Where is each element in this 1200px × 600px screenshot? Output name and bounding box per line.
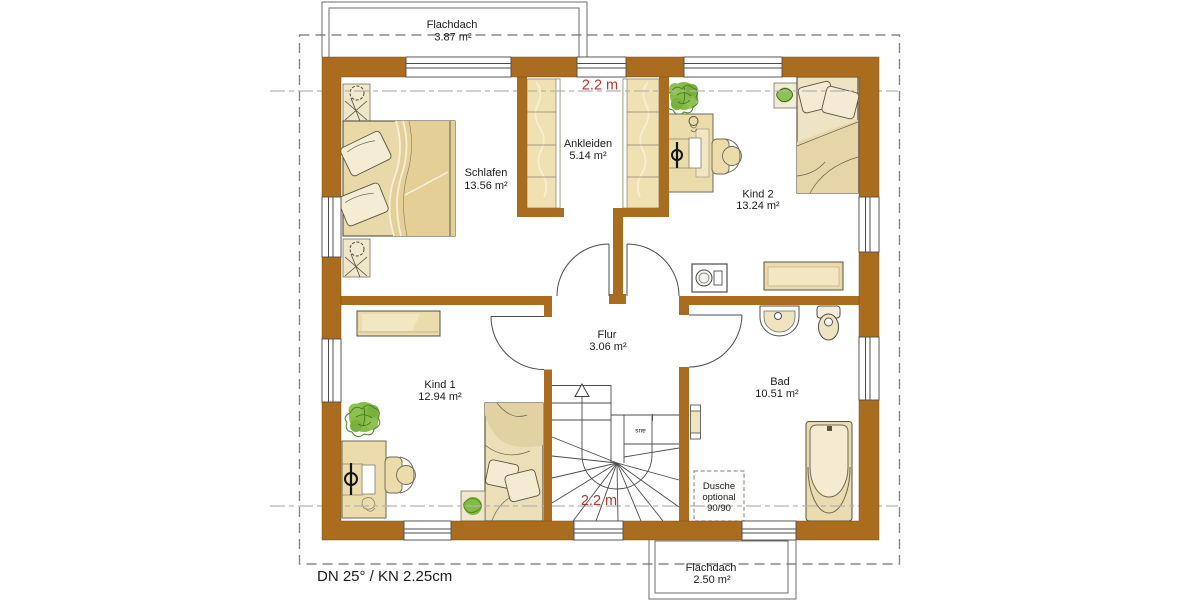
svg-text:2.50 m²: 2.50 m²	[693, 574, 731, 586]
svg-text:DN 25° / KN 2.25cm: DN 25° / KN 2.25cm	[317, 568, 452, 585]
svg-text:Flur: Flur	[598, 329, 617, 341]
svg-text:3.87 m²: 3.87 m²	[434, 32, 472, 44]
svg-text:5.14 m²: 5.14 m²	[569, 150, 607, 162]
svg-text:Flachdach: Flachdach	[686, 562, 737, 574]
svg-text:Flachdach: Flachdach	[427, 19, 478, 31]
svg-text:10.51 m²: 10.51 m²	[755, 388, 799, 400]
svg-text:2.2 m: 2.2 m	[581, 493, 617, 509]
svg-text:Ankleiden: Ankleiden	[564, 138, 612, 150]
svg-text:3.06 m²: 3.06 m²	[589, 341, 627, 353]
svg-text:2.2 m: 2.2 m	[582, 78, 618, 94]
svg-text:13.56 m²: 13.56 m²	[464, 180, 508, 192]
svg-text:Kind 1: Kind 1	[424, 379, 455, 391]
svg-text:Bad: Bad	[770, 376, 790, 388]
svg-text:90/90: 90/90	[707, 503, 731, 514]
svg-text:aus: aus	[635, 427, 646, 434]
svg-text:Dusche: Dusche	[703, 481, 735, 492]
svg-text:optional: optional	[702, 492, 735, 503]
svg-text:13.24 m²: 13.24 m²	[736, 200, 780, 212]
svg-text:12.94 m²: 12.94 m²	[418, 391, 462, 403]
svg-text:Schlafen: Schlafen	[465, 167, 508, 179]
svg-text:Kind 2: Kind 2	[742, 189, 773, 201]
